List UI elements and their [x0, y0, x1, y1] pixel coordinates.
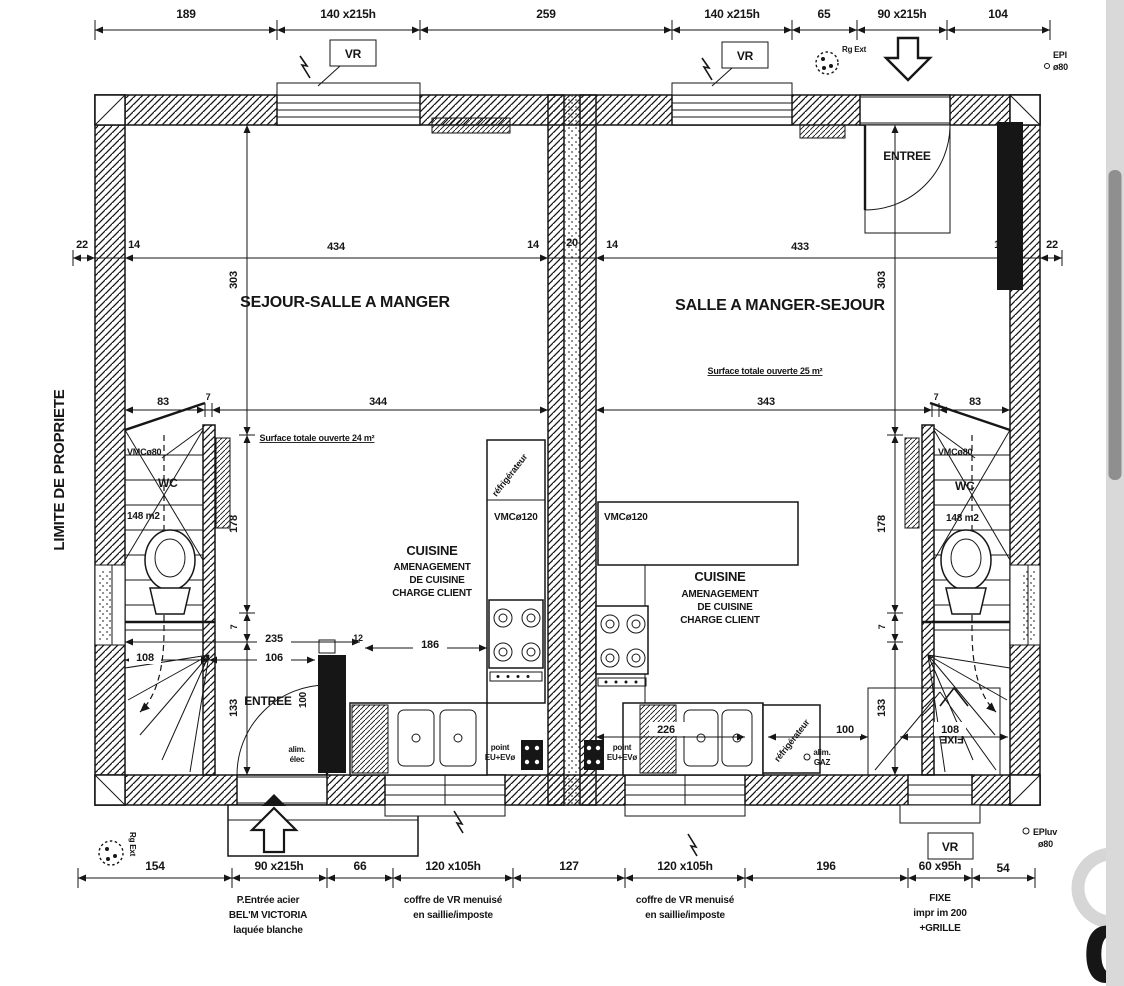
window-right-living	[672, 83, 792, 125]
dim-wall-6: 433	[791, 241, 809, 253]
right-vmc80-label: VMCø80	[938, 447, 973, 457]
rg-ext-top: Rg Ext	[816, 45, 867, 74]
scrollbar-track[interactable]	[1106, 0, 1124, 986]
dim-wall-0: 22	[76, 239, 88, 251]
right-kitchen-line2: AMENAGEMENT	[681, 589, 758, 600]
dim-vright-133: 133	[876, 699, 888, 717]
dim-bot-2: 66	[354, 859, 367, 873]
epluv-label: EPluv	[1033, 827, 1057, 837]
right-kitchen-line3: DE CUISINE	[697, 602, 753, 613]
dim-wall-1: 14	[128, 239, 141, 251]
dim-top-1: 140 x215h	[320, 7, 376, 21]
radiator-left	[432, 118, 510, 133]
dim-bot-7: 60 x95h	[919, 859, 962, 873]
bottom-notes: P.Entrée acier BEL'M VICTORIA laquée bla…	[229, 893, 967, 936]
left-wall-vent	[95, 565, 125, 645]
dim-top-6: 104	[988, 7, 1008, 21]
dim-bot-4: 127	[559, 859, 579, 873]
left-kitchen-line4: CHARGE CLIENT	[392, 588, 472, 599]
vr-label-left: VR	[345, 47, 362, 61]
dim-235: 235	[265, 633, 283, 645]
left-alim-line1: alim.	[288, 745, 305, 754]
epluv-dia: ø80	[1038, 839, 1053, 849]
ep-top-right: EPl ø80	[1045, 50, 1069, 72]
dim-bot-1: 90 x215h	[254, 859, 303, 873]
dim-wall-5: 14	[606, 239, 619, 251]
left-entree-label: ENTREE	[244, 694, 292, 708]
door-note-1: P.Entrée acier	[237, 895, 300, 906]
dim-bot-6: 196	[816, 859, 836, 873]
entry-door-right	[860, 95, 950, 233]
fridge-right: réfrigérateur	[763, 705, 820, 773]
right-drain-line2: EU+EVø	[607, 753, 637, 762]
coffre-note-left-2: en saillie/imposte	[413, 910, 493, 921]
vr-label-right: VR	[737, 49, 754, 63]
dim-vleft-303: 303	[228, 271, 240, 289]
dim-wall-7: 14	[994, 239, 1007, 251]
coffre-note-right-2: en saillie/imposte	[645, 910, 725, 921]
coffre-note-left-1: coffre de VR menuisé	[404, 895, 503, 906]
dim-wall-8: 22	[1046, 239, 1058, 251]
right-wc-area: 148 m2	[946, 513, 979, 524]
window-fixed-right: VR	[900, 775, 980, 859]
gaz-line2: GAZ	[814, 758, 831, 767]
ep-top-label: EPl	[1053, 50, 1067, 60]
scrollbar[interactable]	[1106, 0, 1124, 986]
right-gtl-label: GTL	[1006, 191, 1023, 220]
dim-bot-3: 120 x105h	[425, 859, 481, 873]
dim-12: 12	[353, 633, 363, 643]
left-wc-area: 148 m2	[127, 511, 160, 522]
left-door-dim-100: 100	[298, 691, 309, 708]
scrollbar-thumb[interactable]	[1109, 170, 1122, 480]
dim-vright-303: 303	[876, 271, 888, 289]
left-surface-note: Surface totale ouverte 24 m²	[260, 433, 375, 443]
right-drain-line1: point	[613, 743, 632, 752]
vr-label-bottom: VR	[942, 840, 959, 854]
right-kitchen-line1: CUISINE	[694, 569, 746, 584]
flash-marks-bottom	[454, 811, 697, 856]
sink-counter-left	[350, 703, 487, 775]
fixe-note-3: +GRILLE	[919, 923, 961, 934]
floor-plan-drawing: d	[0, 0, 1124, 986]
stove-right	[596, 606, 648, 686]
ep-top-dia: ø80	[1053, 62, 1068, 72]
left-vmc120-label: VMCø120	[494, 512, 538, 523]
window-left-kitchen	[385, 775, 505, 816]
sink-counter-right	[623, 703, 763, 775]
dim-mid-1: 7	[206, 392, 211, 402]
right-wall-vent	[1010, 565, 1040, 645]
epluv-bottom-right: EPluv ø80	[1023, 827, 1057, 849]
rg-ext-bottom: Rg Ext	[99, 832, 137, 865]
right-kitchen-text: CUISINE AMENAGEMENT DE CUISINE CHARGE CL…	[680, 569, 760, 626]
left-room-title: SEJOUR-SALLE A MANGER	[240, 294, 450, 311]
left-wc-label: WC	[158, 476, 178, 490]
kitchen-left: réfrigérateur VMCø120 point EU+EVø	[288, 440, 545, 775]
party-wall	[548, 95, 596, 805]
dim-mid-0: 83	[157, 396, 169, 408]
dim-108-left: 108	[136, 652, 154, 664]
dim-top-4: 65	[818, 7, 831, 21]
dim-mid-3: 343	[757, 396, 775, 408]
property-limit-label: LIMITE DE PROPRIETE	[51, 389, 68, 550]
dim-vright-7: 7	[877, 624, 887, 629]
dim-wall-4: 20	[566, 237, 578, 249]
dim-21: 21	[325, 655, 335, 665]
rg-ext-bottom-label: Rg Ext	[128, 832, 137, 857]
scanned-floor-plan-page: d	[0, 0, 1124, 986]
left-kitchen-line3: DE CUISINE	[409, 575, 465, 586]
toilet-left	[145, 530, 195, 614]
left-kitchen-line1: CUISINE	[406, 543, 458, 558]
dim-vleft-7: 7	[229, 624, 239, 629]
dim-vright-178: 178	[876, 515, 888, 533]
fixe-note-2: impr im 200	[913, 908, 967, 919]
dim-186: 186	[421, 639, 439, 651]
left-drain-line2: EU+EVø	[485, 753, 515, 762]
right-wc-label: WC	[955, 479, 975, 493]
dim-top-5: 90 x215h	[877, 7, 926, 21]
dim-bot-5: 120 x105h	[657, 859, 713, 873]
entry-arrow-down-icon	[886, 38, 930, 80]
dim-row-bottom: 154 90 x215h 66 120 x105h 127 120 x105h …	[78, 859, 1035, 888]
dim-top-2: 259	[536, 7, 556, 21]
right-entree-label: ENTREE	[883, 149, 931, 163]
door-note-3: laquée blanche	[233, 925, 303, 936]
dim-108-right: 108	[941, 724, 959, 736]
left-gtl-label: GTL	[327, 705, 337, 723]
rg-ext-top-label: Rg Ext	[842, 45, 867, 54]
right-vmc120-label: VMCø120	[604, 512, 648, 523]
dim-mid-5: 83	[969, 396, 981, 408]
left-kitchen-text: CUISINE AMENAGEMENT DE CUISINE CHARGE CL…	[392, 543, 472, 599]
radiator-right	[800, 125, 845, 138]
dim-top-0: 189	[176, 7, 196, 21]
fixe-note-1: FIXE	[929, 893, 951, 904]
toilet-right	[941, 530, 991, 614]
window-right-kitchen	[625, 775, 745, 816]
dim-top-3: 140 x215h	[704, 7, 760, 21]
gaz-line1: alim.	[813, 748, 830, 757]
dim-vleft-133: 133	[228, 699, 240, 717]
dim-226: 226	[657, 724, 675, 736]
drain-point-left: point EU+EVø	[485, 740, 543, 770]
stair-wc-right: VMCø80 WC 148 m2	[905, 403, 1010, 775]
dim-vleft-178: 178	[228, 515, 240, 533]
left-kitchen-line2: AMENAGEMENT	[393, 562, 470, 573]
dim-row-top: 189 140 x215h 259 140 x215h 65 90 x215h …	[95, 7, 1050, 40]
dim-wall-3: 14	[527, 239, 540, 251]
dim-col-left: 303 178 7 133	[228, 125, 255, 775]
stair-wc-left: VMCø80 WC 148 m2	[125, 403, 230, 775]
left-vmc80-label: VMCø80	[127, 447, 162, 457]
dim-mid-4: 7	[934, 392, 939, 402]
dim-mid-2: 344	[369, 396, 388, 408]
door-note-2: BEL'M VICTORIA	[229, 910, 307, 921]
dim-106: 106	[265, 652, 283, 664]
left-drain-line1: point	[491, 743, 510, 752]
right-room-title: SALLE A MANGER-SEJOUR	[675, 297, 885, 314]
dim-100-right: 100	[836, 724, 854, 736]
coffre-note-right-1: coffre de VR menuisé	[636, 895, 735, 906]
dim-bot-8: 54	[997, 861, 1010, 875]
right-surface-note: Surface totale ouverte 25 m²	[708, 366, 823, 376]
right-kitchen-line4: CHARGE CLIENT	[680, 615, 760, 626]
dim-wall-2: 434	[327, 241, 346, 253]
left-alim-line2: élec	[290, 755, 306, 764]
vr-boxes-top: VR VR	[318, 40, 768, 86]
window-left-living	[277, 83, 420, 125]
dim-bot-0: 154	[145, 859, 165, 873]
